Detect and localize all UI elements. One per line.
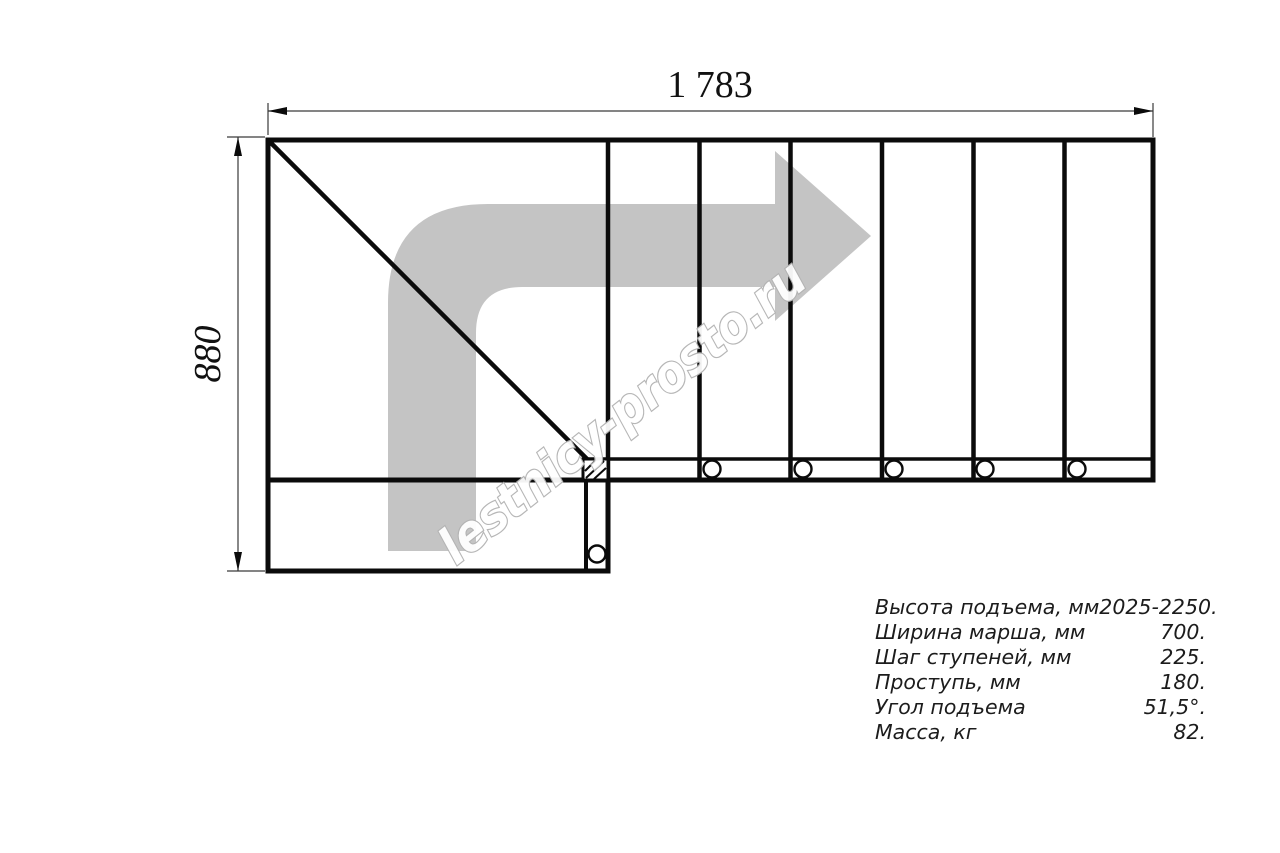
spec-value: 82. — [1173, 720, 1206, 745]
spec-label: Шаг ступеней, мм — [875, 645, 1071, 670]
spec-row-rise-height: Высота подъема, мм 2025-2250. — [875, 595, 1206, 620]
bolt-marker — [795, 461, 812, 478]
spec-label: Высота подъема, мм — [875, 595, 1099, 620]
spec-value: 180. — [1160, 670, 1206, 695]
dim-arrow-left — [268, 107, 287, 115]
dim-arrow-down — [234, 552, 242, 571]
width-dimension: 1 783 — [268, 64, 1153, 137]
spec-label: Ширина марша, мм — [875, 620, 1085, 645]
direction-arrow-icon — [388, 151, 871, 551]
height-dimension-label: 880 — [187, 326, 229, 383]
bolt-markers — [589, 461, 1086, 563]
width-dimension-label: 1 783 — [667, 64, 753, 106]
dim-arrow-up — [234, 137, 242, 156]
spec-label: Угол подъема — [875, 695, 1026, 720]
height-dimension: 880 — [187, 137, 265, 571]
spec-row-tread: Проступь, мм 180. — [875, 670, 1206, 695]
bolt-marker — [977, 461, 994, 478]
bolt-marker — [589, 546, 606, 563]
spec-row-climb-angle: Угол подъема 51,5°. — [875, 695, 1206, 720]
bolt-marker — [886, 461, 903, 478]
spec-row-flight-width: Ширина марша, мм 700. — [875, 620, 1206, 645]
dim-arrow-right — [1134, 107, 1153, 115]
staircase-drawing-page: 1 783 880 lestnicy-prosto.ru Высота подъ… — [0, 0, 1280, 853]
spec-row-step-pitch: Шаг ступеней, мм 225. — [875, 645, 1206, 670]
spec-value: 700. — [1160, 620, 1206, 645]
bolt-marker — [704, 461, 721, 478]
spec-row-mass: Масса, кг 82. — [875, 720, 1206, 745]
spec-value: 225. — [1160, 645, 1206, 670]
spec-value: 2025-2250. — [1099, 595, 1217, 620]
spec-value: 51,5°. — [1144, 695, 1206, 720]
spec-label: Проступь, мм — [875, 670, 1021, 695]
spec-label: Масса, кг — [875, 720, 977, 745]
bolt-marker — [1069, 461, 1086, 478]
spec-table: Высота подъема, мм 2025-2250. Ширина мар… — [875, 595, 1206, 745]
